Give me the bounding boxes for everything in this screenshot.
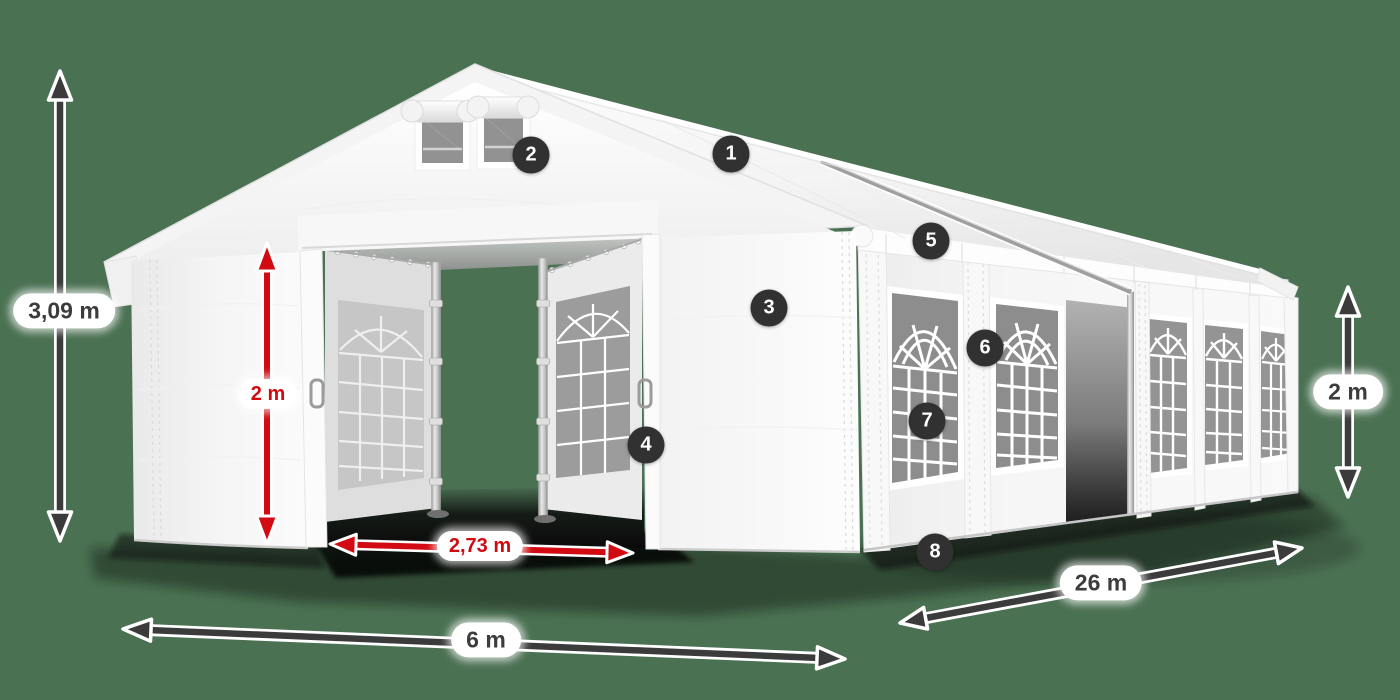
- side-doorway-opening: [1066, 291, 1134, 524]
- label-entrance-height: 2 m: [239, 379, 297, 409]
- hotspot-4[interactable]: 4: [628, 427, 665, 464]
- pole-base-plate: [427, 510, 449, 518]
- label-entrance-width: 2,73 m: [437, 531, 523, 561]
- label-total-height: 3,09 m: [13, 293, 115, 328]
- hotspot-2[interactable]: 2: [513, 137, 550, 174]
- hotspot-5[interactable]: 5: [913, 223, 950, 260]
- entrance: [322, 233, 644, 548]
- tent-illustration: [0, 0, 1400, 700]
- side-doorway-pole: [1127, 291, 1134, 514]
- side-window-2: [990, 297, 1064, 476]
- hotspot-1[interactable]: 1: [713, 136, 750, 173]
- label-side-length: 26 m: [1060, 565, 1142, 600]
- pole-base-plate: [534, 515, 556, 523]
- label-wall-height: 2 m: [1313, 374, 1383, 409]
- tent-dimension-diagram: 3,09 m 2 m 2,73 m 6 m 26 m 2 m 1 2 3 4 5…: [0, 0, 1400, 700]
- label-front-width: 6 m: [451, 622, 521, 657]
- right-door-leaf: [534, 239, 642, 523]
- side-window-3: [1144, 313, 1192, 479]
- hotspot-3[interactable]: 3: [751, 290, 788, 327]
- hotspot-7[interactable]: 7: [909, 403, 946, 440]
- side-window-4: [1200, 319, 1248, 471]
- left-door-leaf: [325, 249, 449, 522]
- hotspot-6[interactable]: 6: [967, 330, 1004, 367]
- front-right-wall: [654, 231, 860, 552]
- side-window-1: [886, 286, 964, 491]
- hotspot-8[interactable]: 8: [917, 534, 954, 571]
